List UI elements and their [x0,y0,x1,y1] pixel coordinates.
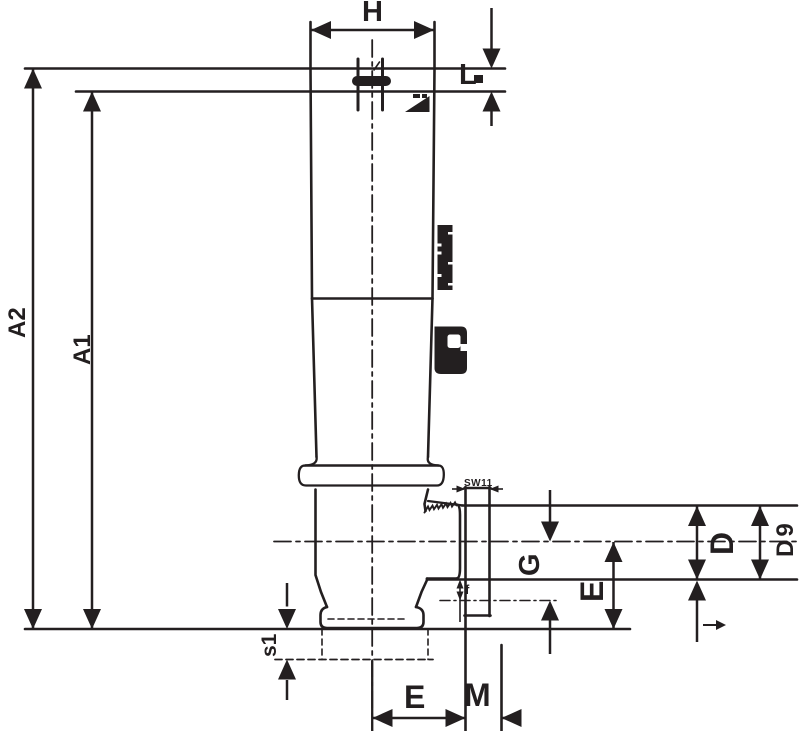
svg-text:A2: A2 [4,307,31,338]
svg-text:D: D [704,532,740,555]
svg-text:A1: A1 [69,334,96,365]
svg-text:G: G [514,553,546,576]
svg-text:E: E [404,679,425,715]
svg-text:D9: D9 [772,520,799,557]
svg-text:H: H [362,0,383,28]
svg-text:s1: s1 [258,633,281,657]
svg-text:M: M [464,677,491,713]
svg-text:E: E [574,581,610,602]
svg-text:SW11: SW11 [464,478,493,489]
svg-text:f: f [465,582,470,597]
